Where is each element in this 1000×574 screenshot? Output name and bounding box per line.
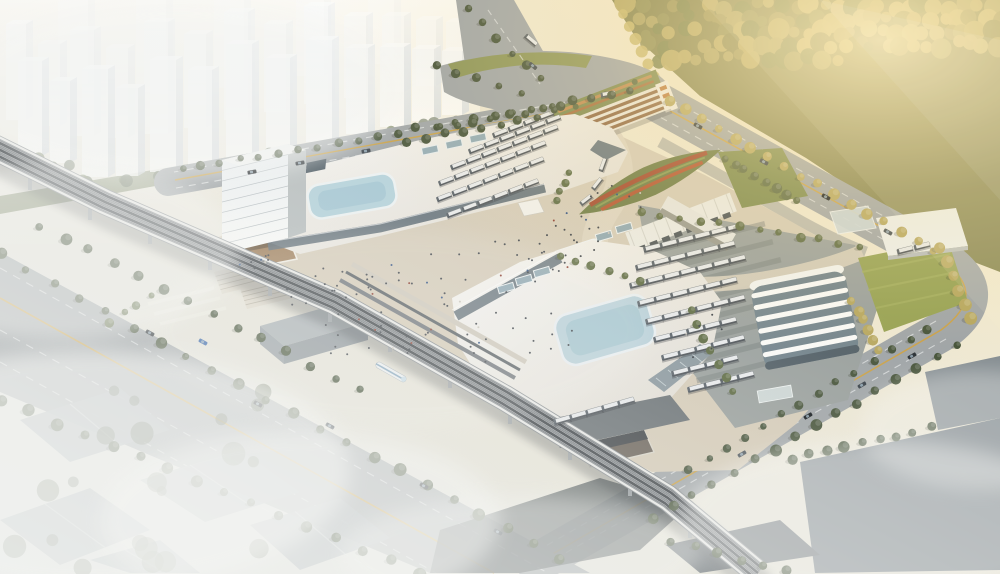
rendering-canvas: Bird's-eye rendering of a modern rail an… — [0, 0, 1000, 574]
mist-and-sunlight — [0, 0, 1000, 574]
aerial-rendering: Bird's-eye rendering of a modern rail an… — [0, 0, 1000, 574]
